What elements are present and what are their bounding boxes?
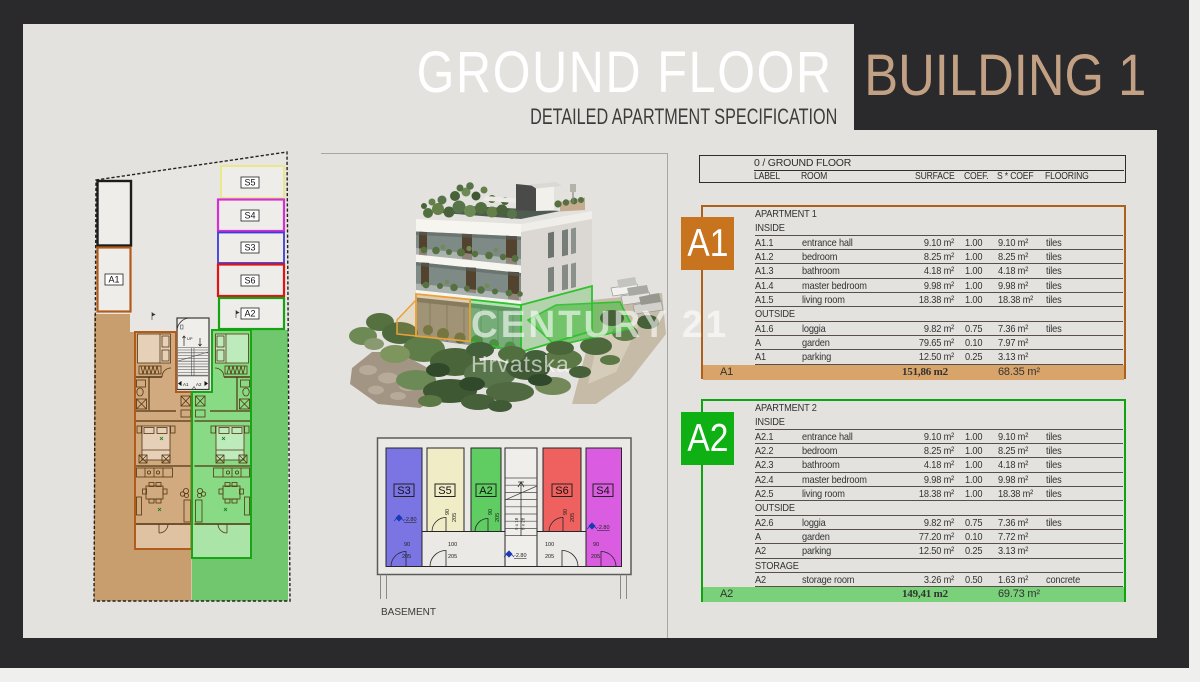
svg-text:-2.80: -2.80 bbox=[597, 525, 610, 531]
svg-text:205: 205 bbox=[495, 513, 501, 522]
svg-text:205: 205 bbox=[545, 554, 554, 560]
svg-text:S6: S6 bbox=[244, 276, 255, 286]
svg-text:S5: S5 bbox=[244, 178, 255, 188]
svg-text:S3: S3 bbox=[244, 243, 255, 253]
svg-text:205: 205 bbox=[452, 513, 458, 522]
svg-text:-2.80: -2.80 bbox=[404, 517, 417, 523]
svg-text:S5: S5 bbox=[438, 485, 451, 497]
svg-text:100: 100 bbox=[448, 542, 457, 548]
svg-text:90: 90 bbox=[593, 542, 599, 548]
svg-text:A2: A2 bbox=[479, 485, 492, 497]
svg-text:A1: A1 bbox=[108, 275, 119, 285]
svg-text:UP: UP bbox=[187, 336, 193, 341]
svg-text:205: 205 bbox=[448, 554, 457, 560]
svg-text:S3: S3 bbox=[397, 485, 410, 497]
svg-text:8 x 28: 8 x 28 bbox=[521, 517, 526, 530]
svg-text:90: 90 bbox=[488, 509, 494, 515]
svg-text:S4: S4 bbox=[596, 485, 609, 497]
svg-text:100: 100 bbox=[545, 542, 554, 548]
svg-text:205: 205 bbox=[570, 513, 576, 522]
svg-text:A2: A2 bbox=[244, 309, 255, 319]
svg-text:-2.80: -2.80 bbox=[514, 553, 527, 559]
svg-text:BASEMENT: BASEMENT bbox=[381, 607, 436, 618]
svg-text:90: 90 bbox=[445, 509, 451, 515]
svg-text:90: 90 bbox=[563, 509, 569, 515]
svg-text:205: 205 bbox=[402, 554, 411, 560]
svg-text:A2: A2 bbox=[196, 382, 202, 387]
svg-text:205: 205 bbox=[591, 554, 600, 560]
svg-text:S4: S4 bbox=[244, 211, 255, 221]
svg-text:S6: S6 bbox=[555, 485, 568, 497]
svg-text:9 x 18: 9 x 18 bbox=[514, 517, 519, 530]
svg-text:A1: A1 bbox=[183, 382, 189, 387]
svg-text:90: 90 bbox=[404, 542, 410, 548]
